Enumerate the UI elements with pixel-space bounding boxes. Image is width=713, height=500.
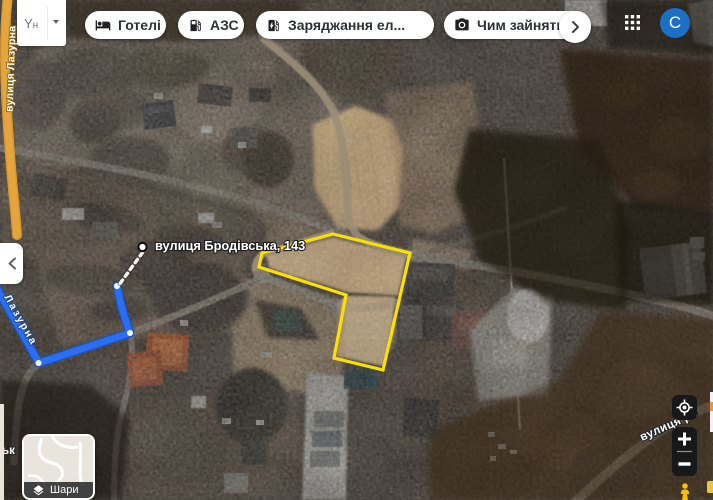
svg-text:вулиця Бродівська, 143: вулиця Бродівська, 143 bbox=[155, 238, 305, 253]
